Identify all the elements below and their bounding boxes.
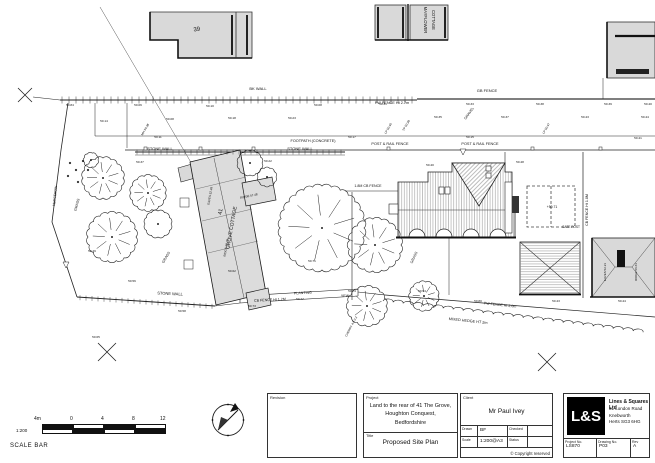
scale-bar: 4m 0 4 8 12 1:200 SCALE BAR [10,416,180,456]
company-address-line: Herts SG3 6HG [609,419,642,426]
plan-label: MIXED HEDGE HT 2m [449,317,488,325]
north-arrow-icon [212,403,245,436]
plan-label: 50.43 [552,299,560,303]
plan-label: 50.15 [466,135,474,139]
plan-label: CHERRY 4.0 0.2 [344,315,358,337]
plan-label: STONE WALL [147,146,173,151]
plan-label: LP 50.40 [383,122,393,135]
plan-label: 50.08 [314,103,322,107]
tree-trunk [423,295,425,297]
plan-label: 50.38 [536,102,544,106]
plan-label: GB FENCE [477,88,498,93]
tree-trunk [102,177,104,179]
scale-segment [73,429,104,434]
plan-label: 50.17 [348,135,356,139]
scale-segment [104,429,135,434]
drawn-value: BF [480,428,486,433]
building-greenside [590,238,655,297]
tree-trunk [157,223,159,225]
plan-label: 50.84 [66,103,74,107]
plan-label: MH 50.38 [140,123,150,137]
plan-label: +50.71 [547,205,558,209]
scale-tick: 4 [101,416,104,422]
scale-tick: 0 [70,416,73,422]
copyright-note: © Copyright reserved [510,451,550,456]
plan-label: 50.10 [206,104,214,108]
plan-label: 50.65 [92,335,100,339]
drawing-no-value: P03 [599,444,608,449]
plan-label: EAVES 52.21 [603,263,607,281]
project-no-value: LS870 [566,444,580,449]
plan-label: CB FENCE Ht 1.8M [585,194,589,226]
plan-label: GRASS [410,250,419,264]
scale-tick: 12 [160,416,166,422]
project-line: Houghton Conquest, [364,410,457,418]
plan-label: 50.37 [501,115,509,119]
tree-trunk [266,176,268,178]
tree-trunk [249,162,251,164]
plan-label: 50.40 [644,102,652,106]
proposed-house [389,163,519,238]
plan-label: BK WALL [249,86,267,91]
tree-trunk [90,159,92,161]
plan-label: 50.18 [228,116,236,120]
checked-label: Checked [509,427,523,431]
tree-trunk [321,227,323,229]
title-block-project: Project Land to the rear of 41 The Grove… [363,393,458,458]
plan-label: 50.39 [604,102,612,106]
plan-label: POST & RAIL FENCE [461,142,499,146]
status-label: Status [509,438,519,442]
rev-value: A [633,444,636,449]
site-plan-sheet: BK WALLGB FENCEPW FENCE Ht 2.7mFOOTPATH … [0,0,655,463]
plan-label: 50.40 [426,163,434,167]
scale-segment [42,429,73,434]
plan-label: 50.37 [136,160,144,164]
plan-label: 50.43 [581,115,589,119]
plan-label: 50.08 [166,117,174,121]
plan-label: 50.80 [474,299,482,303]
tree-trunk [366,305,368,307]
company-address-line: 81 London Road [609,406,642,413]
plan-label: 50.74 [348,289,356,293]
stone-wall-ticks [80,295,212,309]
client-name: Mr Paul Ivey [461,408,552,415]
plan-label: 50.56 [128,279,136,283]
company-logo: L&S [567,397,605,435]
revision-label: Revision [270,395,285,400]
plan-label: PW FENCE Ht 2.0m [484,301,517,308]
plan-label: 50.41 [634,136,642,140]
garage-hipped-roof [519,242,581,295]
plan-label: GATE POST [562,225,580,229]
plan-label: 50.71 [308,259,316,263]
title-label: Title [366,433,373,438]
plan-label: 50.49 [88,249,96,253]
scale-ratio: 1:200 [16,428,27,433]
plan-label: 50.73 [248,304,256,308]
plan-label: RIDGE 56.61 [634,263,638,281]
plan-label: 50.77 [296,297,304,301]
plan-label: HEDGEROW [52,185,58,206]
plan-label: POST & RAIL FENCE [371,142,409,146]
plan-label: TP 50.38 [401,119,411,132]
plan-label: 50.06 [134,103,142,107]
project-line: Bedfordshire [364,419,457,427]
plan-label: GRASS [161,251,171,264]
scale-value: 1:200@A3 [480,439,503,444]
plan-label: MAYFLOWER [423,7,428,34]
plan-label: 50.35 [434,115,442,119]
building-mayflower-cottage [375,5,406,40]
plan-label: 50.44 [618,299,626,303]
plan-label: CB FENCE Ht 1.2M [254,297,286,303]
plan-label: 50.22 [264,159,272,163]
plan-label: 50.44 [641,115,649,119]
tree-trunk [147,192,149,194]
drawing-title: Proposed Site Plan [364,439,457,446]
building-grove-cottage [178,150,276,310]
project-label: Project [366,395,378,400]
plan-label: STONE WALL [157,290,184,296]
title-block-client: Client Mr Paul Ivey Drawn BF Checked Sca… [460,393,553,458]
plan-label: LP 50.47 [541,122,551,135]
scale-tick: 4m [34,416,41,422]
plan-label: GRAVEL [463,106,474,120]
plan-label: 50.48 [516,160,524,164]
scale-segment [135,429,166,434]
plan-label: 50.31 [379,102,387,106]
project-line: Land to the rear of 41 The Grove, [364,402,457,410]
plan-label: STONE WALL [287,146,313,151]
title-block-revision: Revision [267,393,357,458]
plan-label: 50.33 [466,102,474,106]
scale-bar-caption: SCALE BAR [10,443,48,449]
title-block-company: L&S Lines & Squares Ltd 81 London Road K… [563,393,650,458]
plan-label: 41 [218,208,225,215]
plan-label: 50.11 [154,135,162,139]
plan-label: 50.14 [100,119,108,123]
drawn-label: Drawn [462,427,472,431]
client-label: Client [463,395,473,400]
plan-label: PLANTING [294,291,312,296]
plan-label: FOOTPATH (CONCRETE) [291,139,337,143]
plan-label: 50.54 [418,289,426,293]
plan-label: GRASS [73,198,80,212]
tree-trunk [111,236,113,238]
plan-label: YEW [341,294,350,298]
tree-trunk [374,244,376,246]
plan-label: 50.23 [288,116,296,120]
scale-tick: 8 [132,416,135,422]
plan-label: COTTAGE [431,10,436,30]
plan-label: 1.8M CB FENCE [354,184,382,188]
building-39 [150,12,252,58]
plan-label: 50.58 [178,309,186,313]
plan-label: 50.62 [228,269,236,273]
scale-label: Scale [462,438,471,442]
